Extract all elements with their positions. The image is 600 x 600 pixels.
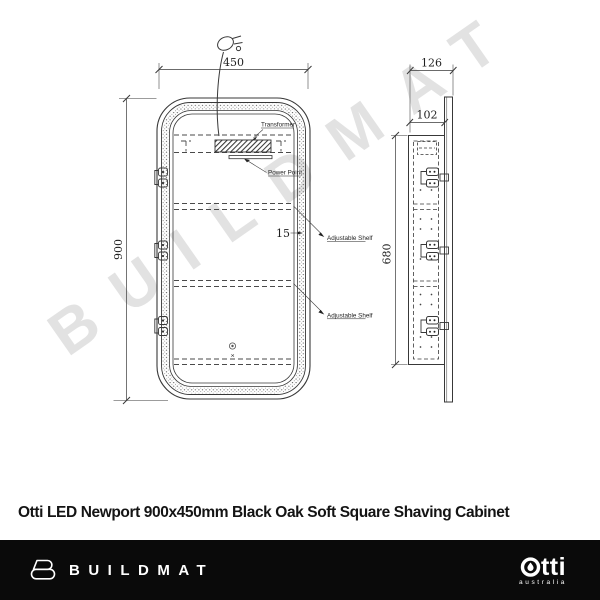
label-power-point: Power Point [268,170,302,177]
buildmat-wordmark: BUILDMAT [69,562,214,579]
technical-drawing: 450 900 15 Transformer Power Point Adjus… [0,0,600,505]
buildmat-icon [30,559,58,581]
product-title: Otti LED Newport 900x450mm Black Oak Sof… [18,504,578,522]
dim-front-height: 900 [112,239,125,260]
otti-droplet-o-icon [520,556,541,577]
label-adjustable-shelf-1: Adjustable Shelf [327,235,373,242]
otti-subtext: australia [519,579,567,586]
label-adjustable-shelf-2: Adjustable Shelf [327,313,373,320]
dim-frame-thickness: 15 [276,227,290,240]
dim-front-width: 450 [223,56,244,69]
power-plug-icon [215,34,242,53]
transformer-assembly [215,34,272,159]
otti-logo: tti australia [519,556,567,586]
page: BUILDMAT [0,0,600,600]
touch-sensor-icon [229,343,235,357]
footer-bar: BUILDMAT tti australia [0,540,600,600]
buildmat-logo: BUILDMAT [30,559,214,581]
otti-wordmark-tail: tti [541,557,566,577]
dim-side-body-height: 680 [381,244,394,265]
dim-side-body-depth: 102 [417,109,438,122]
side-view [409,97,453,402]
label-transformer: Transformer [261,122,295,129]
power-point-box [229,156,272,159]
transformer-box [215,140,271,152]
dim-side-overall-depth: 126 [421,57,442,70]
